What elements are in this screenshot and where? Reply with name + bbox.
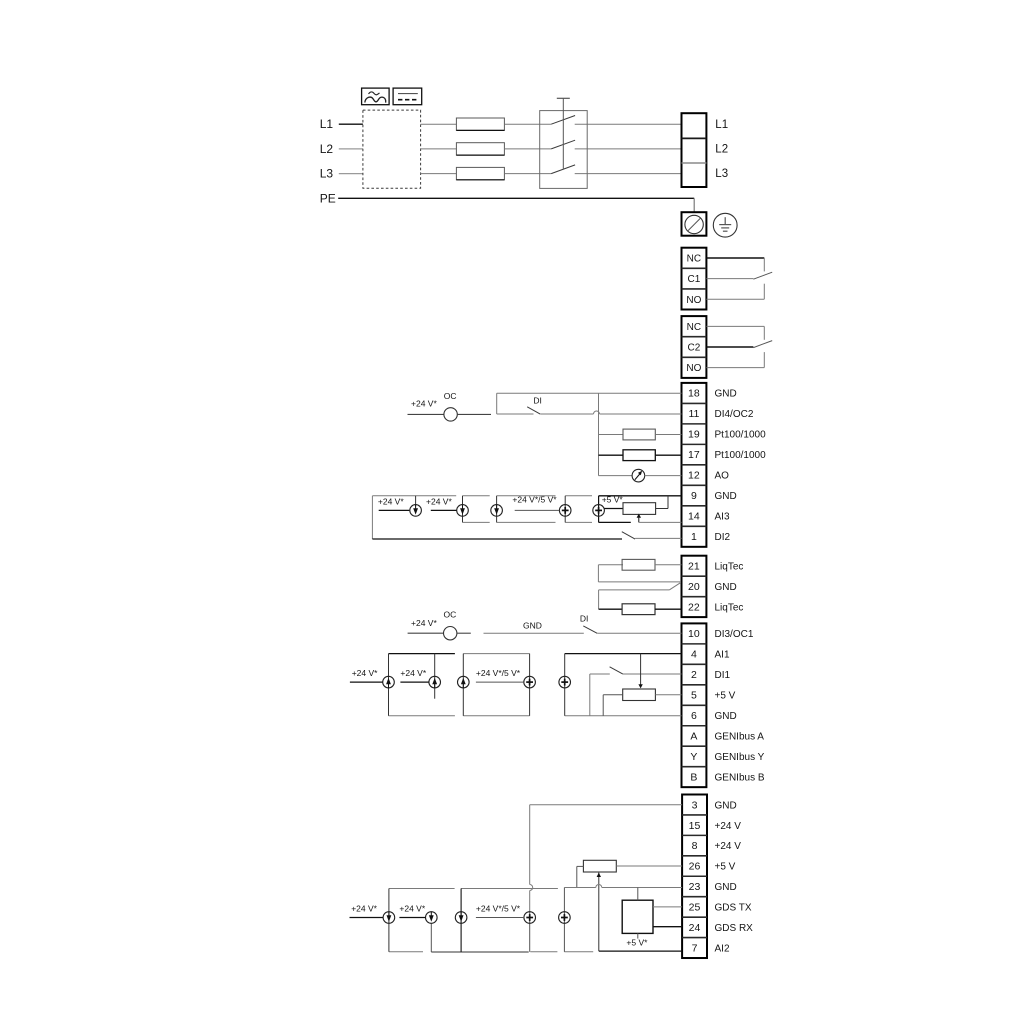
svg-text:OC: OC xyxy=(444,391,457,401)
svg-text:+24 V*: +24 V* xyxy=(352,668,378,678)
svg-text:NO: NO xyxy=(686,363,701,374)
svg-text:17: 17 xyxy=(688,449,700,461)
svg-text:15: 15 xyxy=(689,820,701,832)
svg-text:GENIbus Y: GENIbus Y xyxy=(715,752,765,763)
svg-text:+24 V*: +24 V* xyxy=(400,668,426,678)
svg-text:22: 22 xyxy=(688,601,700,613)
svg-text:B: B xyxy=(690,772,697,784)
svg-text:DI4/OC2: DI4/OC2 xyxy=(715,409,754,420)
svg-text:GND: GND xyxy=(715,882,737,893)
svg-text:NO: NO xyxy=(686,295,701,306)
svg-text:LiqTec: LiqTec xyxy=(715,562,744,573)
svg-text:26: 26 xyxy=(689,861,701,873)
svg-text:OC: OC xyxy=(444,610,457,620)
svg-text:DI1: DI1 xyxy=(715,670,731,681)
svg-text:7: 7 xyxy=(692,942,698,954)
svg-text:DI: DI xyxy=(580,614,589,624)
svg-text:18: 18 xyxy=(688,388,700,400)
svg-text:+24 V*: +24 V* xyxy=(411,399,437,409)
svg-text:LiqTec: LiqTec xyxy=(715,602,744,613)
svg-text:Y: Y xyxy=(690,751,697,763)
svg-text:L3: L3 xyxy=(715,168,728,180)
svg-text:AO: AO xyxy=(715,471,730,482)
svg-text:8: 8 xyxy=(692,840,698,852)
svg-text:A: A xyxy=(690,731,697,743)
svg-text:+24 V*: +24 V* xyxy=(399,903,425,913)
svg-text:AI1: AI1 xyxy=(715,650,730,661)
svg-text:AI3: AI3 xyxy=(715,512,730,523)
svg-text:3: 3 xyxy=(692,799,698,811)
svg-text:1: 1 xyxy=(691,531,697,543)
svg-text:AI2: AI2 xyxy=(715,943,730,954)
svg-text:DI2: DI2 xyxy=(715,532,731,543)
svg-text:NC: NC xyxy=(687,254,701,265)
svg-text:GND: GND xyxy=(715,389,737,400)
svg-text:+24 V*/5 V*: +24 V*/5 V* xyxy=(476,668,521,678)
svg-text:GENIbus A: GENIbus A xyxy=(715,732,765,743)
svg-text:L1: L1 xyxy=(320,117,334,131)
svg-text:GDS RX: GDS RX xyxy=(715,923,754,934)
svg-text:GDS TX: GDS TX xyxy=(715,903,752,914)
svg-text:GND: GND xyxy=(715,491,737,502)
svg-text:+24 V*/5 V*: +24 V*/5 V* xyxy=(476,904,521,914)
svg-text:+5 V: +5 V xyxy=(715,691,736,702)
svg-text:GND: GND xyxy=(523,621,542,631)
svg-text:21: 21 xyxy=(688,561,700,573)
svg-text:+24 V*/5 V*: +24 V*/5 V* xyxy=(512,495,557,505)
svg-text:+24 V*: +24 V* xyxy=(426,497,452,507)
svg-text:NC: NC xyxy=(687,322,701,333)
svg-text:23: 23 xyxy=(689,881,701,893)
svg-text:19: 19 xyxy=(688,429,700,441)
svg-text:+24 V: +24 V xyxy=(715,841,742,852)
svg-text:Pt100/1000: Pt100/1000 xyxy=(715,450,767,461)
svg-text:L2: L2 xyxy=(320,142,334,156)
svg-text:14: 14 xyxy=(688,511,700,523)
svg-text:+24 V*: +24 V* xyxy=(411,618,437,628)
svg-text:L2: L2 xyxy=(715,144,728,156)
svg-text:2: 2 xyxy=(691,669,697,681)
svg-text:11: 11 xyxy=(688,408,699,420)
svg-text:5: 5 xyxy=(691,690,697,702)
svg-text:C2: C2 xyxy=(688,343,701,354)
svg-text:12: 12 xyxy=(688,470,700,482)
svg-text:DI: DI xyxy=(533,396,542,406)
svg-text:DI3/OC1: DI3/OC1 xyxy=(715,629,754,640)
svg-text:GENIbus B: GENIbus B xyxy=(715,773,765,784)
svg-text:4: 4 xyxy=(691,649,697,661)
svg-text:C1: C1 xyxy=(688,274,701,285)
svg-text:+5 V*: +5 V* xyxy=(626,938,648,948)
svg-text:+24 V: +24 V xyxy=(715,821,742,832)
svg-text:Pt100/1000: Pt100/1000 xyxy=(715,430,767,441)
svg-text:24: 24 xyxy=(689,922,701,934)
svg-text:9: 9 xyxy=(691,490,697,502)
svg-text:+24 V*: +24 V* xyxy=(378,497,404,507)
svg-text:+5 V*: +5 V* xyxy=(602,495,624,505)
svg-text:L3: L3 xyxy=(320,167,334,181)
svg-text:+5 V: +5 V xyxy=(715,862,736,873)
svg-text:GND: GND xyxy=(715,582,737,593)
svg-text:PE: PE xyxy=(320,191,336,205)
svg-text:20: 20 xyxy=(688,581,700,593)
svg-text:GND: GND xyxy=(715,711,737,722)
svg-text:GND: GND xyxy=(715,800,737,811)
svg-text:6: 6 xyxy=(691,710,697,722)
svg-text:+24 V*: +24 V* xyxy=(351,903,377,913)
svg-text:L1: L1 xyxy=(715,119,728,131)
svg-text:25: 25 xyxy=(689,902,701,914)
svg-text:10: 10 xyxy=(688,628,700,640)
